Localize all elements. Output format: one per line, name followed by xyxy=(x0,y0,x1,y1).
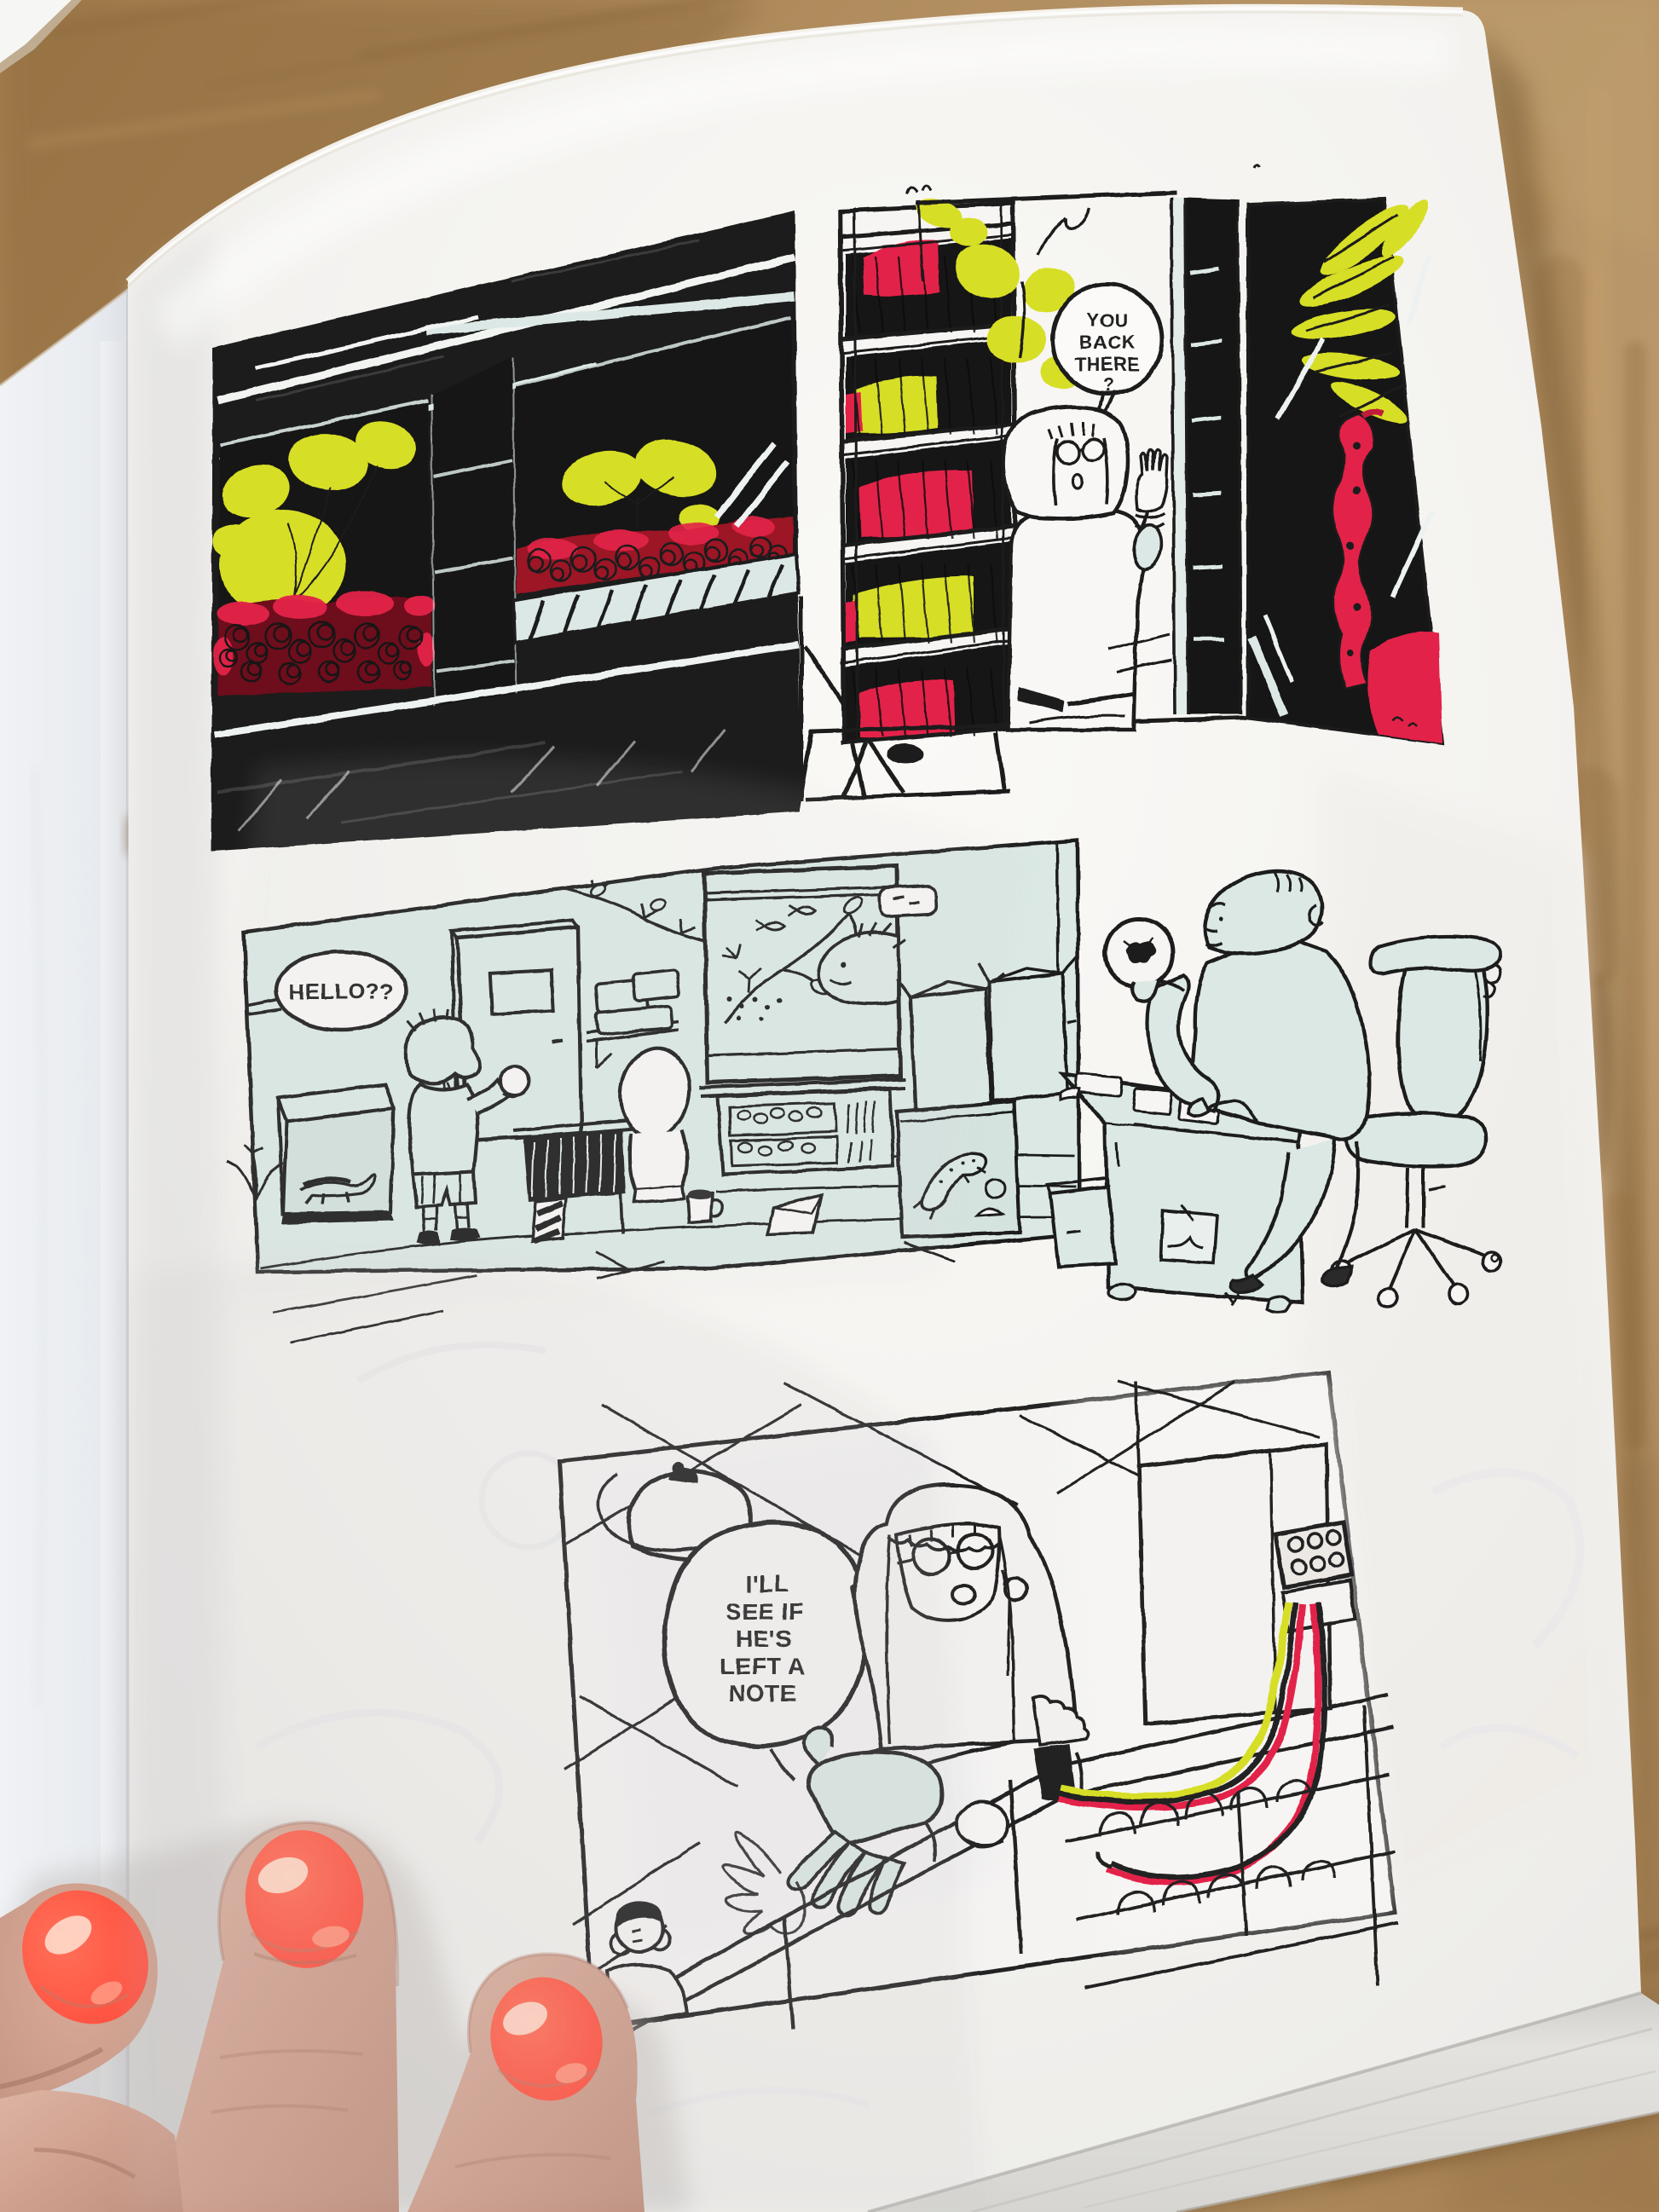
svg-text:?: ? xyxy=(1102,374,1114,396)
svg-text:YOU: YOU xyxy=(1086,309,1128,331)
svg-text:BACK: BACK xyxy=(1079,332,1136,353)
svg-text:THERE: THERE xyxy=(1074,354,1140,375)
